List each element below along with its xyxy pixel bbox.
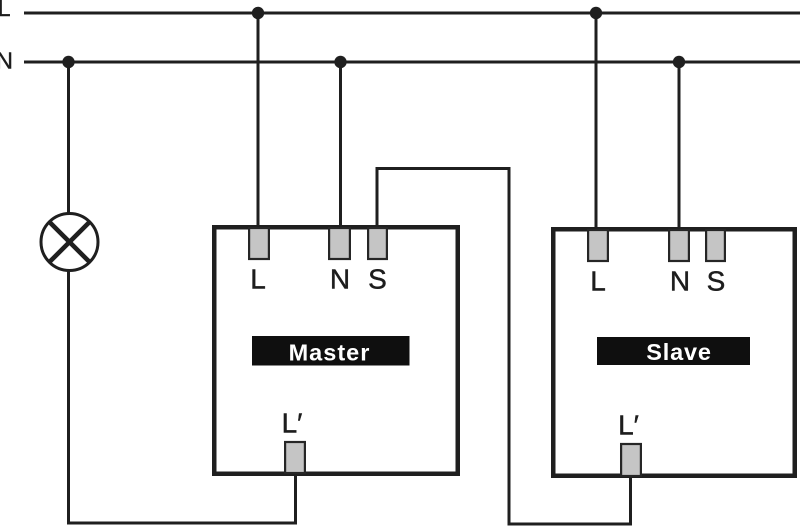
svg-text:L: L bbox=[590, 266, 606, 297]
svg-text:L: L bbox=[250, 264, 266, 295]
svg-text:Slave: Slave bbox=[646, 339, 711, 365]
svg-text:S: S bbox=[368, 264, 387, 295]
svg-text:Master: Master bbox=[289, 340, 371, 366]
svg-text:L: L bbox=[0, 0, 11, 21]
svg-text:L′: L′ bbox=[282, 408, 303, 439]
svg-text:N: N bbox=[0, 48, 13, 74]
svg-text:L′: L′ bbox=[618, 410, 639, 441]
svg-text:N: N bbox=[670, 266, 690, 297]
svg-text:N: N bbox=[330, 264, 350, 295]
svg-text:S: S bbox=[707, 266, 726, 297]
